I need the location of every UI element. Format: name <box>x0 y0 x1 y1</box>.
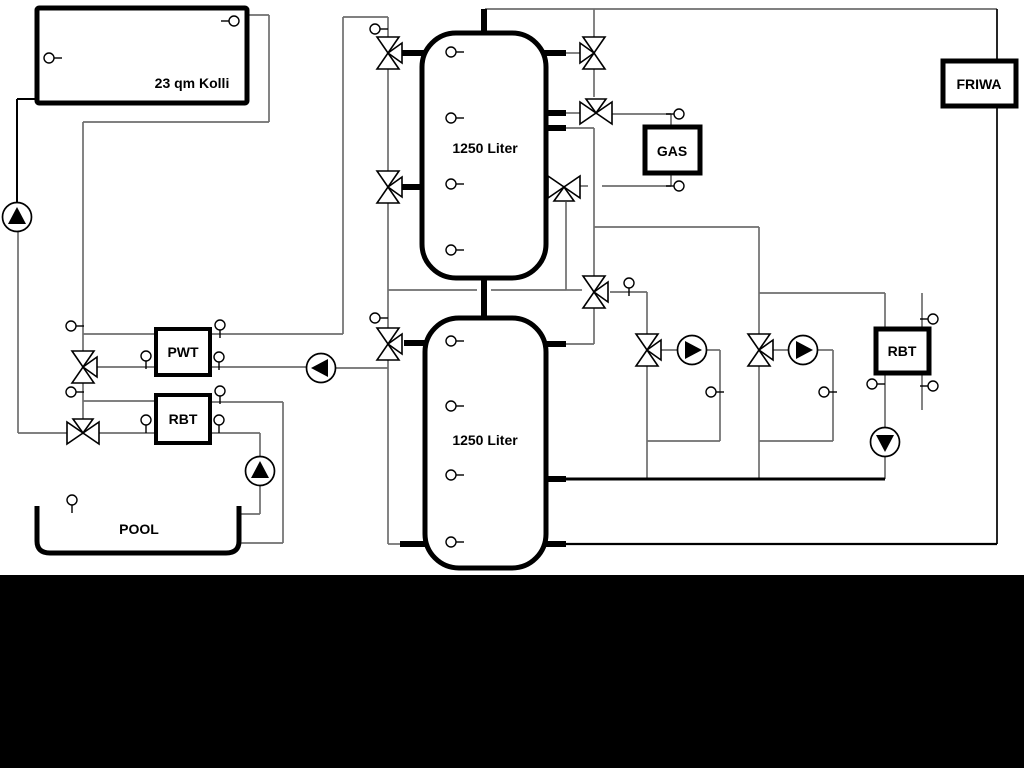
sensor-bulb <box>928 381 938 391</box>
temperature-sensor <box>141 415 151 433</box>
sensor-bulb <box>928 314 938 324</box>
sensor-bulb <box>66 387 76 397</box>
temperature-sensor <box>66 321 84 331</box>
sensor-bulb <box>446 336 456 346</box>
valve-distribution <box>583 276 608 308</box>
temperature-sensor <box>370 313 388 323</box>
valve-tank2-left <box>377 328 402 360</box>
sensor-bulb <box>215 320 225 330</box>
schematic-page: 23 qm Kolli 1250 Liter 1250 Liter PWT RB… <box>0 0 1024 768</box>
sensor-bulb <box>446 113 456 123</box>
pwt-label: PWT <box>167 344 199 360</box>
temperature-sensor <box>867 379 885 389</box>
sensor-bulb <box>66 321 76 331</box>
sensor-bulb <box>446 537 456 547</box>
temperature-sensor <box>706 387 724 397</box>
temperature-sensor <box>666 109 684 119</box>
temperature-sensor <box>370 24 388 34</box>
rbt-right-label: RBT <box>888 343 917 359</box>
valve-tank1-left-top <box>377 37 402 69</box>
sensor-bulb <box>624 278 634 288</box>
temperature-sensor <box>214 415 224 433</box>
buffer-tank-2-label: 1250 Liter <box>452 432 518 448</box>
valve-gas-return <box>548 176 580 201</box>
sensor-bulb <box>214 415 224 425</box>
buffer-tank-1-label: 1250 Liter <box>452 140 518 156</box>
sensor-bulb <box>215 386 225 396</box>
hydraulic-schematic: 23 qm Kolli 1250 Liter 1250 Liter PWT RB… <box>0 0 1024 768</box>
sensor-bulb <box>44 53 54 63</box>
valve-tank1-right-top <box>580 37 605 69</box>
temperature-sensor <box>819 387 837 397</box>
valve-pwt-solar <box>72 351 97 383</box>
gas-boiler-label: GAS <box>657 143 687 159</box>
valve-heating-circuit-1 <box>636 334 661 366</box>
sensor-bulb <box>706 387 716 397</box>
pump-pool <box>246 457 275 486</box>
solar-collector-label: 23 qm Kolli <box>155 75 230 91</box>
sensor-bulb <box>674 181 684 191</box>
valve-gas-supply <box>580 99 612 124</box>
sensor-bulb <box>819 387 829 397</box>
friwa-label: FRIWA <box>956 76 1001 92</box>
pump-pwt-secondary <box>307 354 336 383</box>
temperature-sensor <box>666 181 684 191</box>
sensor-bulb <box>446 401 456 411</box>
sensor-bulb <box>141 351 151 361</box>
valve-tank1-left-bottom <box>377 171 402 203</box>
sensor-bulb <box>446 470 456 480</box>
sensor-bulb <box>370 313 380 323</box>
sensor-bulb <box>229 16 239 26</box>
sensor-bulb <box>867 379 877 389</box>
sensor-bulb <box>67 495 77 505</box>
valve-pool-rbt <box>67 419 99 444</box>
pump-solar <box>3 203 32 232</box>
valve-heating-circuit-2 <box>748 334 773 366</box>
sensor-bulb <box>446 179 456 189</box>
temperature-sensor <box>66 387 84 397</box>
sensor-bulb <box>370 24 380 34</box>
pump-heating-circuit-1 <box>678 336 707 365</box>
bottom-black-bar <box>0 575 1024 768</box>
pump-rbt-right <box>871 428 900 457</box>
pump-heating-circuit-2 <box>789 336 818 365</box>
sensor-bulb <box>214 352 224 362</box>
temperature-sensor <box>624 278 634 296</box>
sensor-bulb <box>141 415 151 425</box>
sensor-bulb <box>674 109 684 119</box>
pool-label: POOL <box>119 521 159 537</box>
sensor-bulb <box>446 245 456 255</box>
temperature-sensor <box>67 495 77 513</box>
sensor-bulb <box>446 47 456 57</box>
rbt-pool-label: RBT <box>169 411 198 427</box>
temperature-sensor <box>215 320 225 338</box>
